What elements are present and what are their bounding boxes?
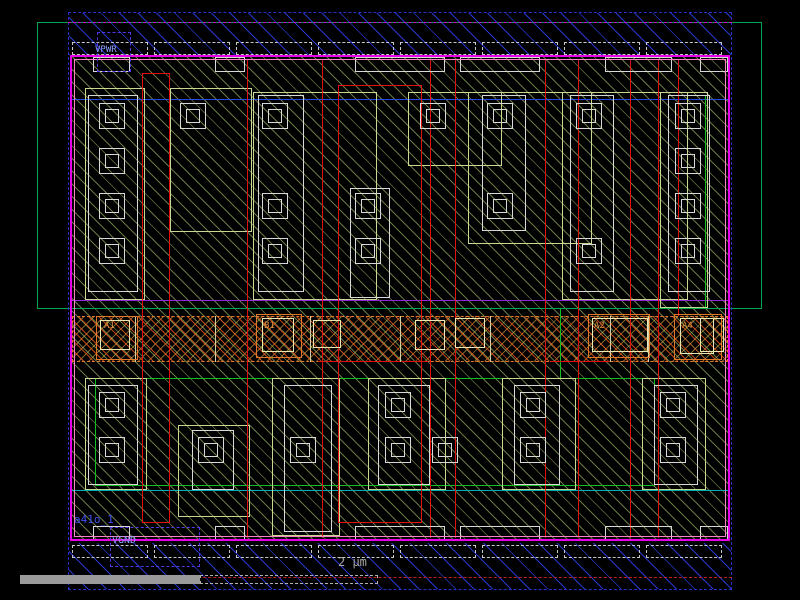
mcon-row-b5 bbox=[400, 545, 476, 558]
pin-label-a2: A2 bbox=[594, 322, 605, 331]
vpwr-label: VPWR bbox=[95, 46, 117, 55]
mcon-row-t8 bbox=[646, 42, 722, 55]
mcon-row-t4 bbox=[318, 42, 394, 55]
pin-label-a4: A4 bbox=[682, 322, 693, 331]
mcon-row-t7 bbox=[564, 42, 640, 55]
mcon-row-t6 bbox=[482, 42, 558, 55]
pin-label-b1: B1 bbox=[264, 322, 275, 331]
mcon-row-t2 bbox=[154, 42, 230, 55]
mcon-row-b6 bbox=[482, 545, 558, 558]
vgnd-pin-box bbox=[110, 527, 200, 567]
boundary-blue-dashed bbox=[68, 12, 732, 590]
scalebar-outline bbox=[200, 575, 378, 584]
mcon-row-b3 bbox=[236, 545, 312, 558]
mcon-row-t3 bbox=[236, 42, 312, 55]
pin-label-a1: A1 bbox=[104, 322, 115, 331]
scalebar-solid bbox=[20, 575, 200, 584]
mcon-row-b7 bbox=[564, 545, 640, 558]
rail-centerline-top bbox=[68, 22, 732, 23]
mcon-row-b8 bbox=[646, 545, 722, 558]
cell-name-label: a41o_1 bbox=[74, 514, 114, 525]
vgnd-label: VGND bbox=[112, 536, 136, 546]
layout-viewport[interactable]: VPWRa41o_1VGNDA1B1A2A42 μm bbox=[0, 0, 800, 600]
mcon-row-t5 bbox=[400, 42, 476, 55]
scalebar-label: 2 μm bbox=[338, 556, 367, 568]
